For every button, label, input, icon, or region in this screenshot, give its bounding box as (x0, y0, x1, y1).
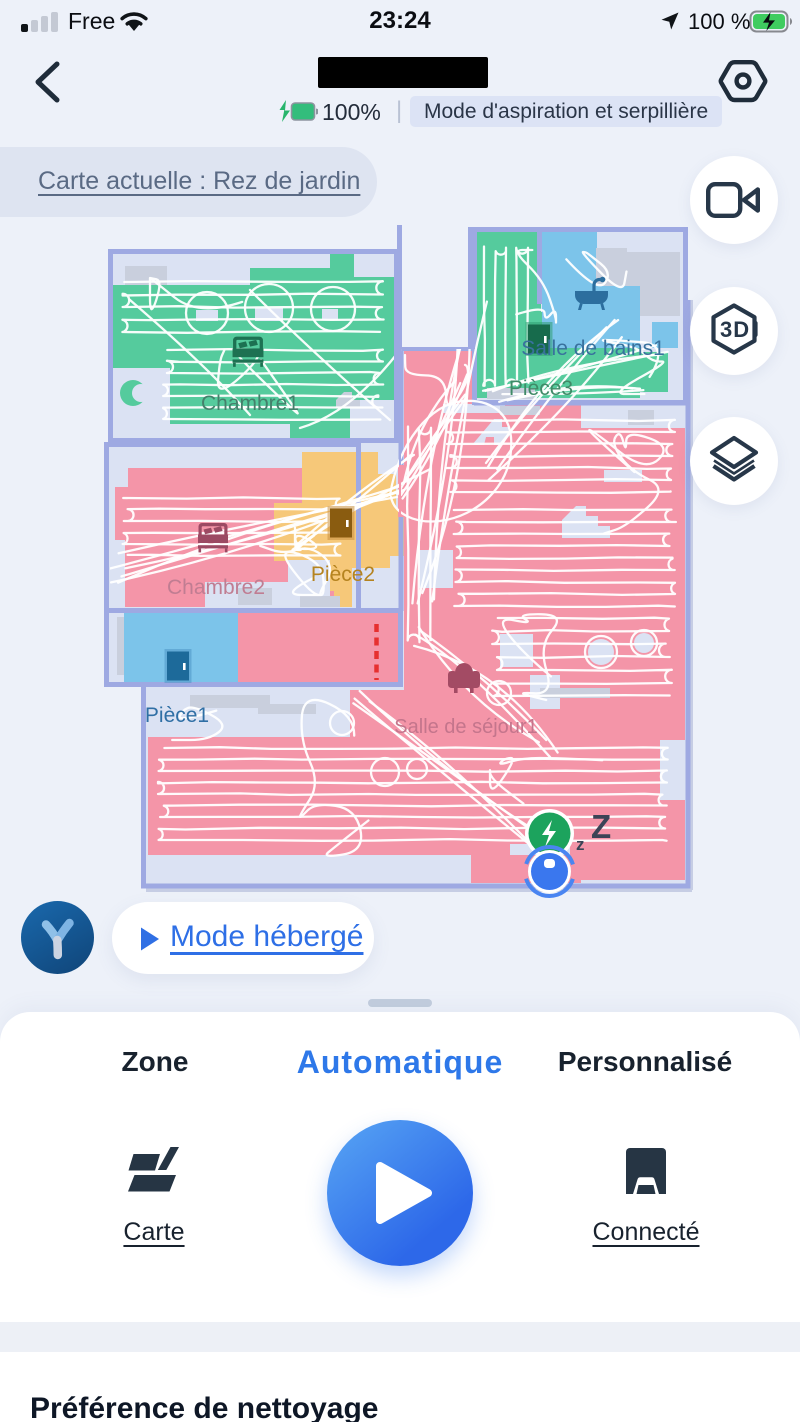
svg-text:Salle de bains1: Salle de bains1 (521, 337, 665, 360)
svg-text:Chambre1: Chambre1 (201, 392, 299, 415)
svg-text:Salle de séjour1: Salle de séjour1 (394, 716, 537, 738)
svg-text:Pièce1: Pièce1 (145, 704, 209, 727)
svg-text:Z: Z (591, 808, 611, 845)
svg-text:Chambre2: Chambre2 (167, 576, 265, 599)
svg-text:3D: 3D (720, 317, 750, 342)
svg-text:z: z (576, 835, 585, 854)
svg-text:Pièce3: Pièce3 (509, 377, 573, 400)
svg-text:Pièce2: Pièce2 (311, 563, 375, 586)
